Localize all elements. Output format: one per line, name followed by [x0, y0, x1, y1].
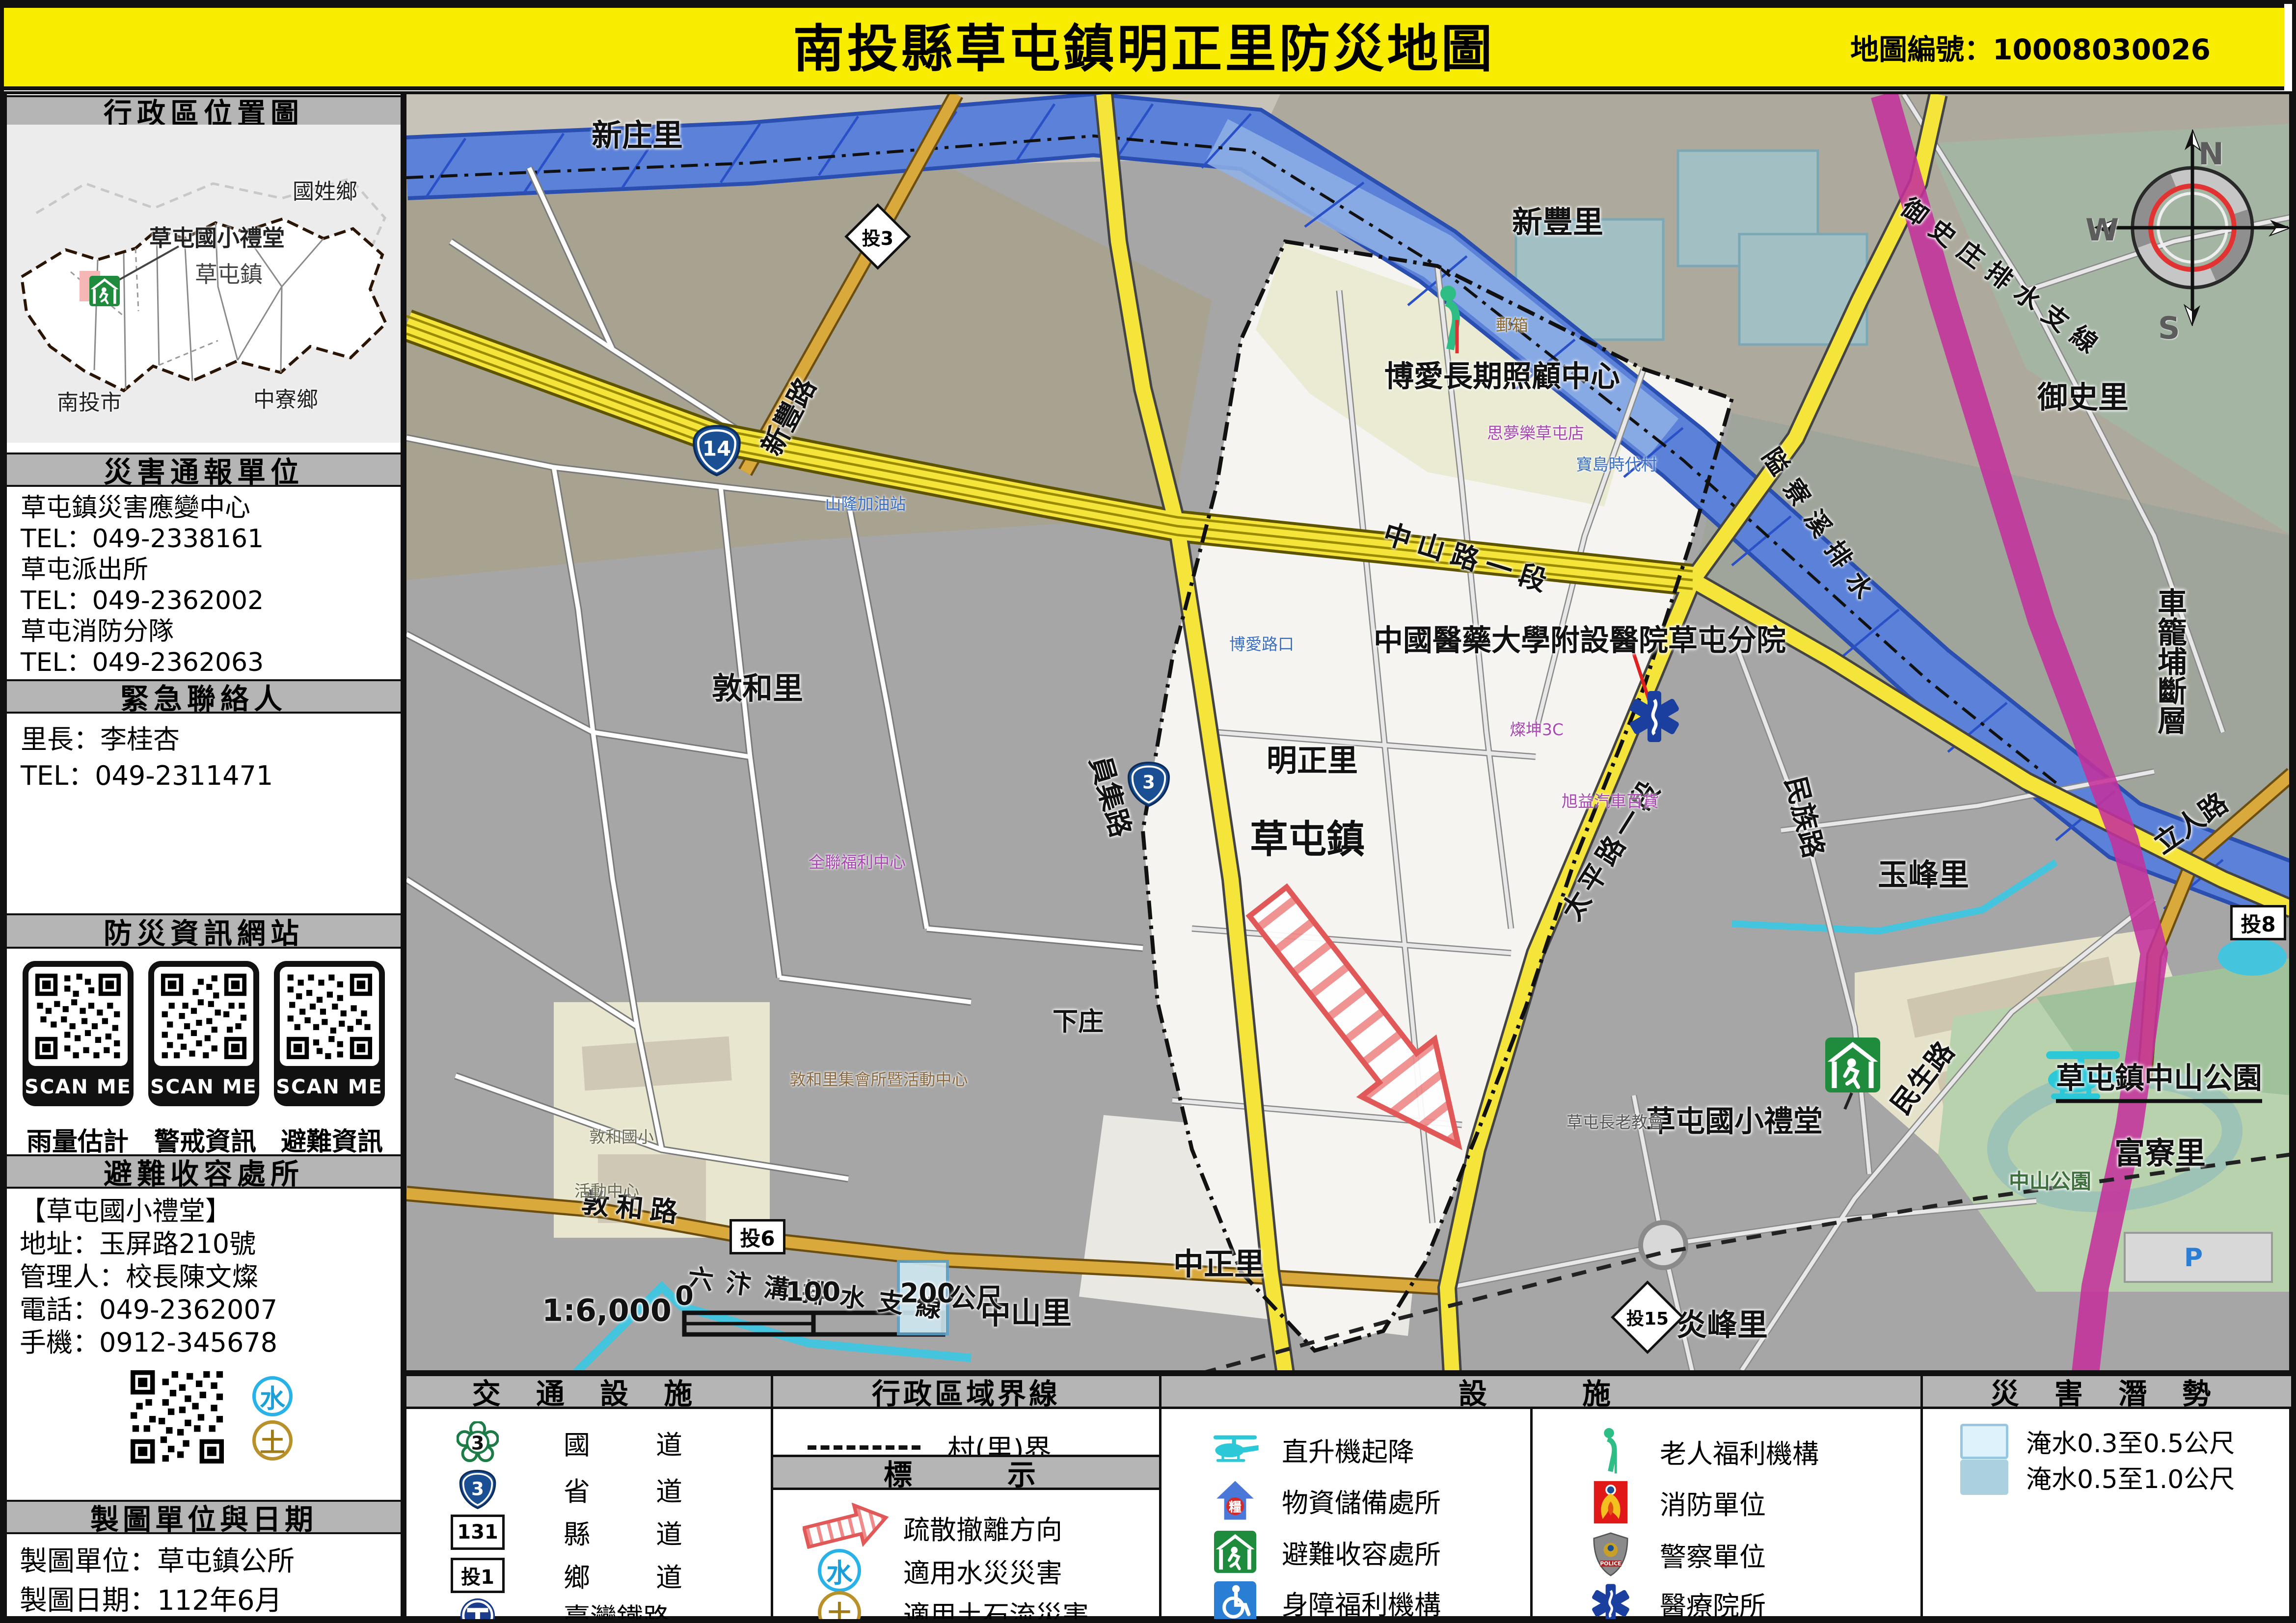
map-label: 敦和里集會所暨活動中心: [790, 1066, 968, 1090]
map-label: 御史里: [2037, 372, 2129, 417]
map-label: 郵箱: [1496, 312, 1528, 336]
section-title-info-sites: 防災資訊網站: [7, 913, 401, 949]
qr-card-rainfall: SCAN ME: [23, 961, 134, 1106]
legend-row-county: 131 縣 道: [451, 1513, 702, 1551]
legend-row-shelter: 避難收容處所: [1208, 1531, 1441, 1573]
shelter-facility-icon: [1825, 1038, 1880, 1092]
map-label: 全聯福利中心: [809, 849, 906, 873]
facilities-divider: [1530, 1407, 1533, 1616]
legend-row-flood-05: 淹水0.5至1.0公尺: [1957, 1459, 2235, 1495]
legend-row-police: POLICE 警察單位: [1584, 1532, 1766, 1576]
compass-e: E: [2288, 246, 2292, 282]
map-label: 100: [785, 1277, 841, 1307]
svg-text:3: 3: [471, 1478, 484, 1499]
map-label: 中正里: [1173, 1239, 1265, 1283]
map-label: 玉峰里: [1878, 850, 1969, 894]
qr-card-alert: SCAN ME: [148, 961, 259, 1106]
map-label: 新庄里: [592, 110, 683, 155]
legend-row-national: 3 國 道: [451, 1421, 702, 1463]
map-label: 草屯鎮: [1250, 809, 1365, 864]
legend-transport-title: 交 通 設 施: [406, 1376, 771, 1409]
inset-label-se: 中寮鄉: [253, 382, 318, 413]
svg-text:3: 3: [471, 1433, 485, 1454]
map-label: 博愛路口: [1229, 631, 1294, 655]
township-route-marker: 投6: [729, 1219, 785, 1254]
section-title-mapping: 製圖單位與日期: [7, 1500, 401, 1534]
map-label: 中國醫藥大學附設醫院草屯分院: [1374, 617, 1786, 660]
legend-row-flood-03: 淹水0.3至0.5公尺: [1957, 1423, 2235, 1460]
township-route-marker: 投8: [2230, 905, 2286, 940]
inset-label-shelter: 草屯國小禮堂: [149, 220, 285, 253]
qr-card-evacuation: SCAN ME: [274, 961, 385, 1106]
legend-row-debris: 土 適用土石流災害: [812, 1591, 1089, 1623]
elder-welfare-icon: [1584, 1428, 1638, 1475]
legend-row-township: 投1 鄉 道: [451, 1556, 702, 1595]
legend-hazard-title: 災 害 潛 勢: [1923, 1376, 2291, 1409]
provincial-route-icon: 3: [451, 1467, 505, 1511]
map-label: 敦和里: [712, 664, 803, 708]
scan-me-label: SCAN ME: [148, 1076, 259, 1098]
legend-facilities-title: 設 施: [1162, 1376, 1920, 1409]
disaster-map-page: { "header": { "title": "南投縣草屯鎮明正里防災地圖", …: [0, 0, 2296, 1623]
supplies-icon: 糧: [1208, 1479, 1262, 1521]
map-label: 思夢樂草屯店: [1487, 420, 1584, 444]
legend-transport-panel: 交 通 設 施 3 國 道 3 省 道: [406, 1376, 773, 1616]
mapping-text: 製圖單位：草屯鎮公所 製圖日期：112年6月: [20, 1542, 295, 1621]
inset-label-sw: 南投市: [57, 385, 122, 416]
legend-facilities-panel: 設 施 直升機起降 糧 物資儲備處所: [1162, 1376, 1923, 1616]
qr-code-alert: [154, 967, 253, 1066]
main-map[interactable]: P: [404, 91, 2292, 1373]
village-boundary-line-icon: [808, 1445, 920, 1450]
legend-boundary-panel: 行政區域界線 村(里)界 標 示 疏散撤離方向 水 適用水災災害 土 適用土石: [773, 1376, 1162, 1616]
section-title-report-units: 災害通報單位: [7, 452, 401, 487]
compass-w: W: [2085, 212, 2119, 248]
compass-s: S: [2158, 310, 2180, 346]
map-label: 中山公園: [2009, 1165, 2091, 1195]
sidebar: 行政區位置圖 國姓鄉 草屯國小禮堂 草屯鎮 南投市 中寮鄉 災害通報單位 草屯鎮…: [4, 91, 404, 1619]
debris-disaster-badge: 土: [252, 1420, 293, 1461]
location-inset-map: 國姓鄉 草屯國小禮堂 草屯鎮 南投市 中寮鄉: [7, 125, 401, 443]
water-disaster-badge: 水: [252, 1376, 293, 1416]
evacuation-arrow-icon: [800, 1503, 893, 1552]
legend-row-disabled: 身障福利機構: [1208, 1581, 1441, 1623]
provincial-route-shield: 3: [1127, 760, 1170, 808]
qr-code-evacuation: [280, 967, 379, 1066]
flood-05-10-swatch: [1957, 1460, 2011, 1495]
provincial-route-shield: 14: [692, 423, 741, 477]
map-label: 敦和國小: [589, 1124, 654, 1147]
inset-label-ne: 國姓鄉: [293, 174, 357, 205]
title-bar: 南投縣草屯鎮明正里防災地圖 地圖編號：10008030026: [4, 4, 2284, 90]
map-label: 富寮里: [2114, 1128, 2206, 1172]
legend-row-supplies: 糧 物資儲備處所: [1208, 1479, 1441, 1521]
police-icon: POLICE: [1584, 1532, 1638, 1576]
scan-me-label: SCAN ME: [274, 1076, 385, 1098]
section-title-shelter: 避難收容處所: [7, 1154, 401, 1189]
map-label: 活動中心: [574, 1178, 639, 1201]
legend-row-water: 水 適用水災災害: [812, 1549, 1062, 1592]
map-label: 0: [675, 1280, 694, 1311]
legend-row-medical: 醫療院所: [1584, 1582, 1766, 1623]
map-label: 炎峰里: [1676, 1300, 1768, 1344]
fire-dept-icon: [1584, 1480, 1638, 1524]
compass-n: N: [2198, 136, 2224, 172]
svg-text:P: P: [2184, 1243, 2203, 1273]
legend-row-evacuation: 疏散撤離方向: [800, 1503, 1062, 1552]
map-label: 博愛長期照顧中心: [1384, 353, 1620, 396]
county-route-icon: 131: [451, 1515, 505, 1550]
legend-bar: 交 通 設 施 3 國 道 3 省 道: [404, 1373, 2292, 1619]
map-label: 公尺: [949, 1277, 1002, 1315]
legend-row-provincial: 3 省 道: [451, 1467, 702, 1511]
map-label: 1:6,000: [542, 1293, 672, 1329]
legend-marks-title: 標 示: [773, 1455, 1159, 1490]
heliport-icon: [1208, 1433, 1262, 1467]
township-route-icon: 投1: [451, 1558, 505, 1593]
map-label: 下庄: [1053, 1001, 1104, 1038]
medical-icon: [1584, 1582, 1638, 1623]
qr-code-rainfall: [28, 967, 128, 1066]
legend-row-fire: 消防單位: [1584, 1480, 1766, 1524]
legend-hazard-panel: 災 害 潛 勢 淹水0.3至0.5公尺 淹水0.5至1.0公尺: [1923, 1376, 2291, 1616]
shelter-icon: [1208, 1531, 1262, 1573]
map-label: 明正里: [1267, 736, 1358, 780]
legend-row-tra: 臺灣鐵路: [451, 1596, 670, 1623]
map-label: 200: [900, 1278, 956, 1309]
qr-code-shelter: [131, 1370, 224, 1463]
map-label: 草屯鎮中山公園: [2056, 1055, 2262, 1103]
national-route-icon: 3: [451, 1421, 505, 1463]
map-label: 草屯國小禮堂: [1646, 1098, 1823, 1141]
legend-row-heliport: 直升機起降: [1208, 1430, 1414, 1469]
section-title-emergency: 緊急聯絡人: [7, 679, 401, 714]
tra-icon: [451, 1596, 505, 1623]
page-title: 南投縣草屯鎮明正里防災地圖: [793, 7, 1495, 81]
map-label: 新豐里: [1512, 197, 1603, 241]
svg-text:糧: 糧: [1229, 1500, 1242, 1515]
emergency-text: 里長：李桂杏 TEL：049-2311471: [21, 721, 273, 794]
map-label: 旭益汽車百貨: [1562, 788, 1659, 812]
section-title-location-map: 行政區位置圖: [7, 95, 401, 127]
disabled-welfare-icon: [1208, 1581, 1262, 1623]
flood-03-05-swatch: [1957, 1424, 2011, 1459]
svg-text:POLICE: POLICE: [1600, 1561, 1621, 1567]
map-label: 山隆加油站: [825, 491, 906, 514]
scan-me-label: SCAN ME: [23, 1076, 134, 1098]
shelter-text: 【草屯國小禮堂】 地址：玉屏路210號 管理人：校長陳文燦 電話：049-236…: [20, 1195, 277, 1359]
map-label: 寶島時代村: [1576, 452, 1657, 475]
legend-row-elder: 老人福利機構: [1584, 1428, 1819, 1475]
map-label: 燦坤3C: [1510, 717, 1564, 740]
debris-disaster-icon: 土: [812, 1591, 866, 1623]
legend-boundary-title: 行政區域界線: [773, 1376, 1159, 1409]
inset-label-town: 草屯鎮: [195, 257, 263, 289]
water-disaster-icon: 水: [812, 1549, 866, 1592]
map-label: 草屯長老教會: [1567, 1109, 1664, 1133]
report-units-text: 草屯鎮災害應變中心 TEL：049-2338161 草屯派出所 TEL：049-…: [21, 493, 264, 678]
map-number: 地圖編號：10008030026: [1850, 27, 2211, 68]
map-label: 車籠埔斷層: [2149, 587, 2191, 735]
